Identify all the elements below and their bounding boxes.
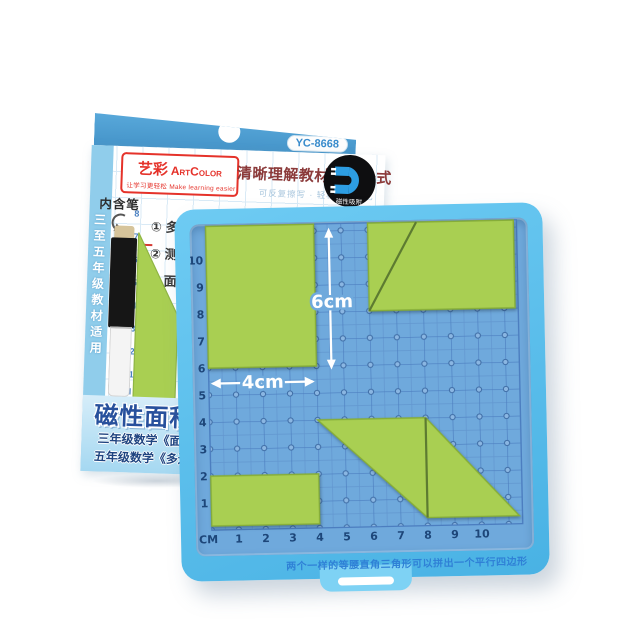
y-axis-label: 2	[200, 470, 208, 483]
x-axis-label: 7	[397, 529, 405, 542]
magnetic-board: CM12345678910123456789104cm6cm 两个一样的等腰直角…	[174, 202, 550, 582]
width-dimension-label: 4cm	[242, 372, 284, 394]
y-axis-label: 1	[201, 497, 209, 510]
x-axis-label: 6	[370, 530, 378, 543]
x-axis-label: 1	[235, 533, 243, 546]
brand-name-en: ArtColor	[171, 164, 223, 180]
y-axis-label: 9	[196, 281, 204, 294]
board-grid-svg: CM12345678910123456789104cm6cm	[189, 217, 534, 556]
y-axis-label: 6	[198, 362, 206, 375]
board-handle-slot	[338, 576, 394, 585]
x-axis-label: 5	[343, 530, 351, 543]
x-axis-label: 8	[424, 529, 432, 542]
x-axis-label: 10	[474, 527, 490, 540]
piece-split-rectangle	[367, 220, 515, 311]
y-axis-label: 4	[199, 416, 207, 429]
brand-name-cn: 艺彩	[138, 158, 169, 180]
y-axis-label: 5	[198, 389, 206, 402]
x-axis-label: 4	[316, 531, 324, 544]
hang-hole	[218, 120, 241, 143]
y-axis-label: 10	[189, 254, 203, 267]
marker-pen-group: 内含笔	[92, 193, 169, 407]
pen-cap-body	[108, 237, 137, 328]
grid-panel: CM12345678910123456789104cm6cm	[189, 217, 534, 556]
height-dimension-label: 6cm	[311, 291, 353, 313]
x-axis-unit: CM	[199, 533, 218, 546]
piece-rectangle-4x6	[205, 224, 316, 368]
y-axis-label: 7	[197, 335, 205, 348]
brand-logo: 艺彩 ArtColor 让学习更轻松 Make learning easier	[120, 152, 239, 197]
pen-barrel	[108, 326, 132, 397]
model-number: YC-8668	[286, 135, 348, 153]
board-caption: 两个一样的等腰直角三角形可以拼出一个平行四边形	[286, 553, 528, 573]
x-axis-label: 9	[451, 528, 459, 541]
x-axis-label: 2	[262, 532, 270, 545]
x-axis-label: 3	[289, 531, 297, 544]
product-photo: YC-8668 三至五年级教材适用 艺彩 ArtColor 让学习更轻松 Mak…	[0, 0, 640, 640]
piece-small-rectangle	[211, 474, 320, 526]
y-axis-label: 3	[199, 443, 207, 456]
y-axis-label: 8	[197, 308, 205, 321]
grade-line-2: 五年级数学《多边	[94, 447, 191, 467]
